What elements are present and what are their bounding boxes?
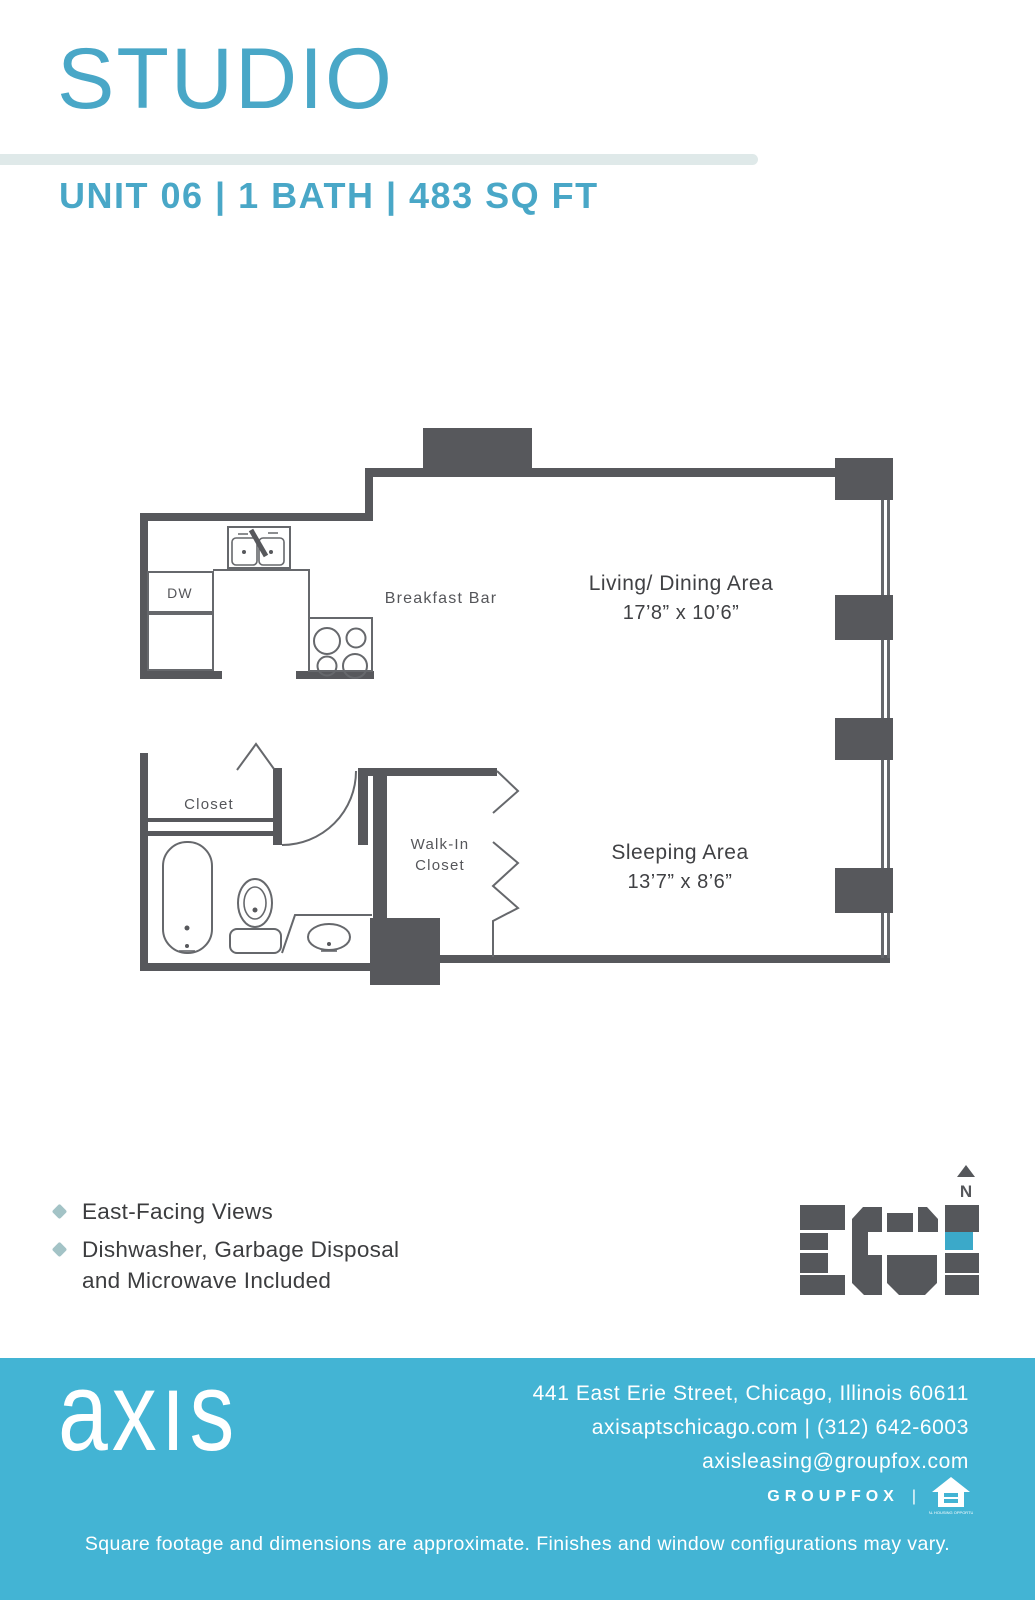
- kitchen-cabinet: [148, 614, 213, 670]
- bifold-closet-door: [237, 744, 274, 770]
- feature-list: East-Facing Views Dishwasher, Garbage Di…: [54, 1196, 399, 1303]
- axis-logo: axıs: [58, 1356, 238, 1468]
- wall-segment: [358, 768, 368, 845]
- sink-drain: [269, 550, 273, 554]
- north-label: N: [960, 1182, 972, 1201]
- wall-segment: [140, 671, 222, 679]
- unit-summary: UNIT 06 | 1 BATH | 483 SQ FT: [59, 178, 599, 214]
- kitchen: [148, 527, 372, 678]
- footer: axıs 441 East Erie Street, Chicago, Illi…: [0, 1358, 1035, 1600]
- wall-segment: [140, 513, 373, 521]
- sleeping-area-label: Sleeping Area: [611, 841, 748, 864]
- kitchen-counter: [213, 570, 309, 618]
- vanity-sink: [308, 924, 350, 950]
- closet-opening-mark: [493, 771, 518, 813]
- dishwasher-label: DW: [167, 585, 193, 601]
- building-key-plan: N: [790, 1160, 990, 1300]
- wall-segment: [140, 963, 378, 971]
- feature-item: East-Facing Views: [54, 1196, 399, 1227]
- structural-column: [835, 458, 893, 500]
- equal-housing-caption: EQUAL HOUSING OPPORTUNITY: [929, 1510, 973, 1515]
- equals-bar: [944, 1499, 958, 1503]
- diamond-icon: [52, 1204, 68, 1220]
- door-post: [273, 768, 282, 845]
- diamond-icon: [52, 1242, 68, 1258]
- window: [887, 913, 890, 958]
- toilet-drain: [253, 908, 258, 913]
- door-swing-arc: [282, 771, 356, 845]
- sink-drain: [242, 550, 246, 554]
- unit-location-highlight: [945, 1232, 973, 1250]
- breakfast-bar-label: Breakfast Bar: [385, 590, 498, 607]
- stove-burner: [347, 629, 366, 648]
- feature-text: Dishwasher, Garbage Disposal and Microwa…: [82, 1234, 399, 1296]
- toilet-tank: [230, 929, 281, 953]
- closet-wall: [147, 831, 273, 836]
- groupfox-wordmark: GROUPFOX: [767, 1488, 899, 1506]
- brand-row: GROUPFOX | EQUAL HOUSING OPPORTUNITY: [767, 1475, 973, 1519]
- tub-drain: [185, 926, 190, 931]
- building-block: [800, 1253, 828, 1273]
- north-arrow-icon: [957, 1165, 975, 1177]
- disclaimer: Square footage and dimensions are approx…: [0, 1533, 1035, 1556]
- bathroom: [163, 842, 372, 953]
- walk-in-closet-label-line2: Closet: [415, 857, 465, 874]
- tub-faucet: [185, 944, 189, 948]
- structural-column: [835, 718, 893, 760]
- flyer-page: STUDIO UNIT 06 | 1 BATH | 483 SQ FT: [0, 0, 1035, 1600]
- building-block: [852, 1207, 882, 1232]
- wall-segment: [373, 768, 387, 918]
- wall-segment: [140, 513, 148, 679]
- building-block: [945, 1275, 979, 1295]
- floor-plan: DW Breakfast Bar Living/ Dining Area 17’…: [0, 415, 1035, 1010]
- vanity-faucet: [327, 942, 331, 946]
- window: [887, 500, 890, 595]
- closet-rod-zigzag: [493, 842, 518, 957]
- brand-separator: |: [912, 1488, 916, 1506]
- stove-burner: [314, 628, 340, 654]
- wall-segment: [140, 753, 148, 971]
- building-block: [887, 1255, 937, 1295]
- footer-web-phone: axisaptschicago.com | (312) 642-6003: [533, 1411, 969, 1445]
- closet-wall: [147, 818, 273, 822]
- feature-text-line: and Microwave Included: [82, 1265, 399, 1296]
- structural-column: [370, 918, 440, 985]
- building-block: [800, 1205, 845, 1230]
- bathtub: [163, 842, 212, 953]
- window: [881, 640, 884, 718]
- building-block: [945, 1205, 979, 1232]
- equals-bar: [944, 1493, 958, 1497]
- feature-item: Dishwasher, Garbage Disposal and Microwa…: [54, 1234, 399, 1296]
- wall-segment: [440, 955, 890, 963]
- feature-text: East-Facing Views: [82, 1196, 273, 1227]
- window: [881, 500, 884, 595]
- feature-text-line: Dishwasher, Garbage Disposal: [82, 1234, 399, 1265]
- building-footprint: [800, 1205, 979, 1295]
- window: [881, 913, 884, 958]
- building-block: [852, 1255, 882, 1295]
- window: [887, 640, 890, 718]
- east-facade: [835, 458, 893, 958]
- footer-contact: 441 East Erie Street, Chicago, Illinois …: [533, 1377, 969, 1479]
- footer-email: axisleasing@groupfox.com: [533, 1445, 969, 1479]
- faucet-handles: [238, 533, 278, 534]
- building-block: [800, 1233, 828, 1250]
- building-block: [918, 1207, 938, 1232]
- equal-housing-icon: EQUAL HOUSING OPPORTUNITY: [929, 1475, 973, 1519]
- living-dining-label: Living/ Dining Area: [589, 572, 774, 595]
- page-title: STUDIO: [57, 36, 394, 122]
- vanity-counter: [282, 915, 372, 953]
- sleeping-area-dimensions: 13’7” x 8’6”: [628, 871, 733, 893]
- building-block: [945, 1253, 979, 1273]
- window: [881, 760, 884, 868]
- living-dining-dimensions: 17’8” x 10’6”: [623, 602, 740, 624]
- plan-labels: DW Breakfast Bar Living/ Dining Area 17’…: [167, 572, 773, 893]
- title-divider: [0, 154, 758, 165]
- structural-column: [835, 868, 893, 913]
- footer-address: 441 East Erie Street, Chicago, Illinois …: [533, 1377, 969, 1411]
- wall-segment: [365, 468, 836, 477]
- building-block: [800, 1275, 845, 1295]
- walk-in-closet-label-line1: Walk-In: [411, 836, 470, 853]
- structural-column: [835, 595, 893, 640]
- window: [887, 760, 890, 868]
- building-block: [887, 1213, 913, 1232]
- closet-label: Closet: [184, 796, 234, 813]
